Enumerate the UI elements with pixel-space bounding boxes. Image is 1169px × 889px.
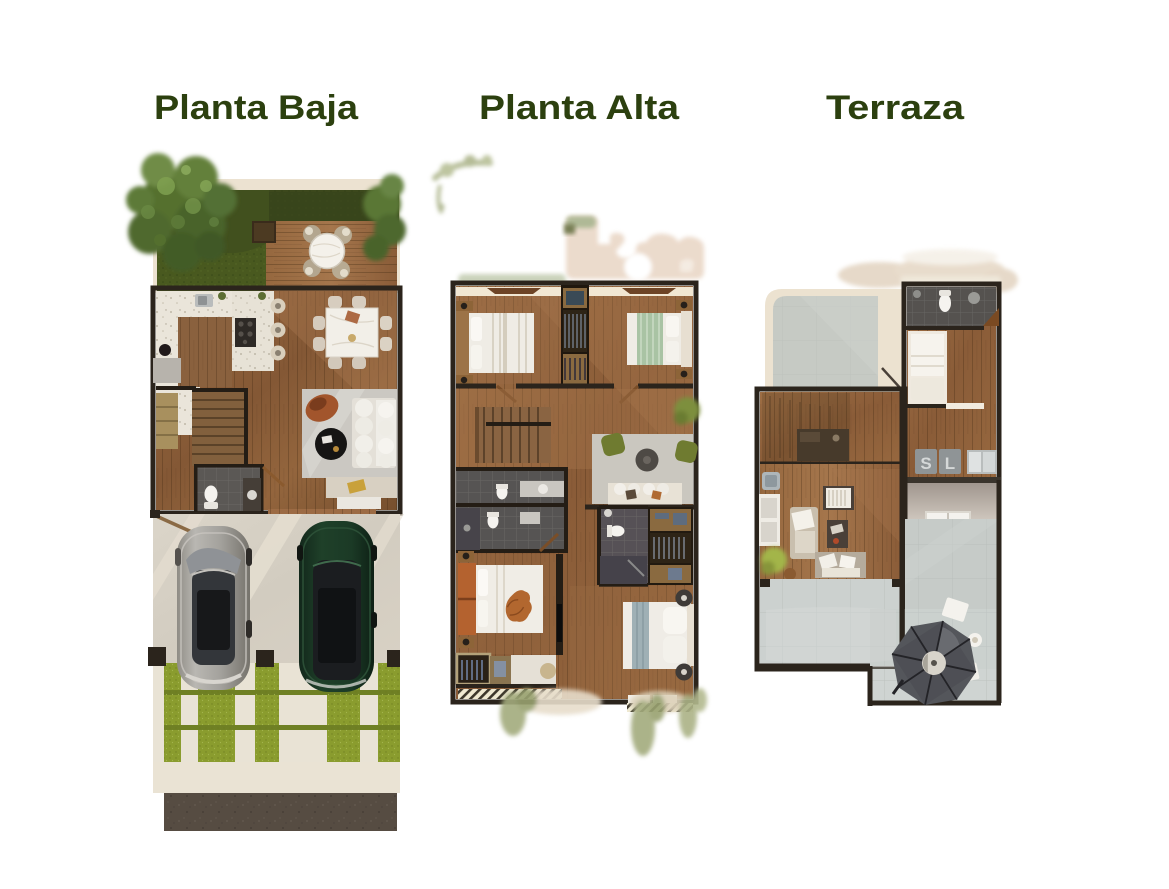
svg-text:S: S	[920, 454, 931, 473]
svg-text:Terraza: Terraza	[826, 89, 965, 127]
svg-text:Planta Alta: Planta Alta	[479, 89, 680, 127]
svg-text:L: L	[945, 454, 955, 473]
svg-text:Planta Baja: Planta Baja	[154, 89, 359, 127]
